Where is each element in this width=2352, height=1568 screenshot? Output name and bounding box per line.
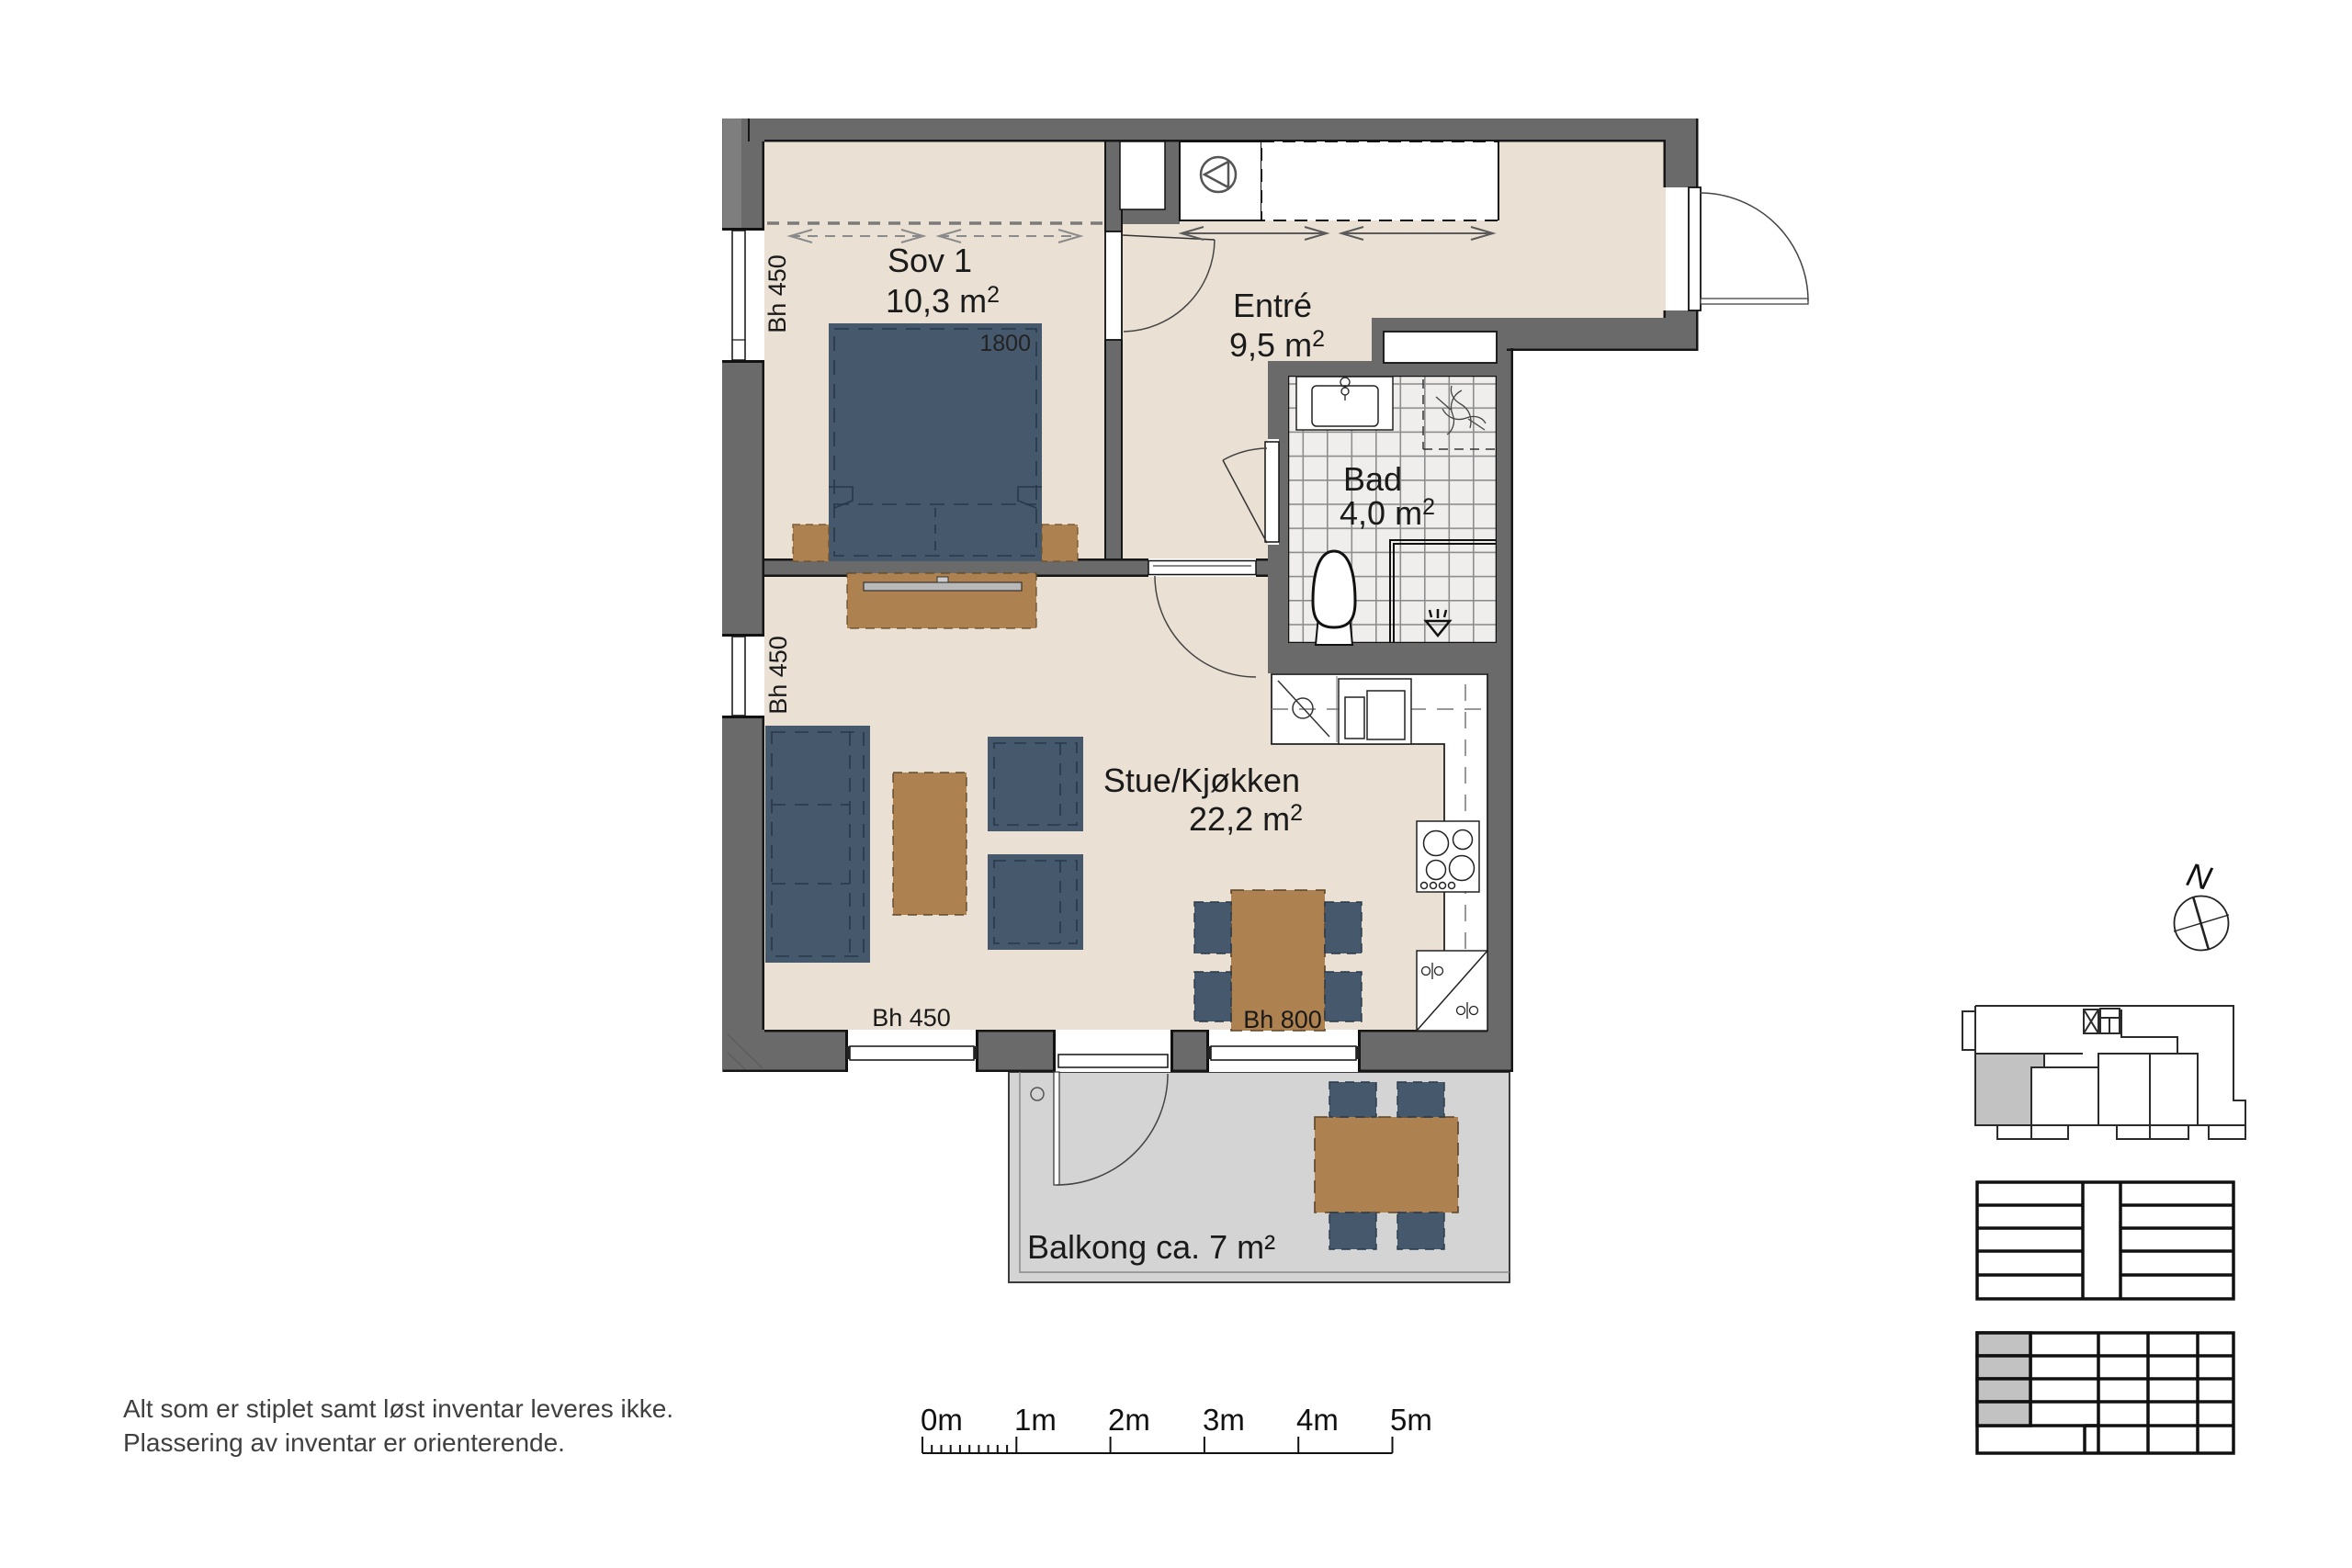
svg-text:Bh 450: Bh 450 [872,1004,951,1032]
svg-text:2m: 2m [1108,1403,1150,1437]
svg-text:3m: 3m [1203,1403,1245,1437]
svg-text:Bad: Bad [1343,460,1402,498]
svg-text:1800: 1800 [979,331,1031,356]
svg-text:Bh 450: Bh 450 [764,636,792,715]
svg-text:22,2 m2: 22,2 m2 [1189,800,1303,838]
svg-text:Sov 1: Sov 1 [888,242,972,279]
svg-text:Alt som er stiplet samt løst i: Alt som er stiplet samt løst inventar le… [123,1394,673,1423]
svg-text:4m: 4m [1296,1403,1339,1437]
svg-text:Bh 450: Bh 450 [763,254,791,333]
svg-text:Bh 800: Bh 800 [1243,1006,1322,1033]
svg-text:5m: 5m [1390,1403,1432,1437]
svg-text:10,3 m2: 10,3 m2 [886,282,1000,320]
svg-text:4,0 m2: 4,0 m2 [1340,494,1435,532]
svg-text:9,5 m2: 9,5 m2 [1229,326,1325,364]
svg-text:Plassering av inventar er orie: Plassering av inventar er orienterende. [123,1428,565,1457]
svg-text:0m: 0m [921,1403,963,1437]
svg-text:Entré: Entré [1233,287,1312,324]
svg-text:Stue/Kjøkken: Stue/Kjøkken [1103,761,1300,799]
svg-text:1m: 1m [1014,1403,1057,1437]
svg-text:Balkong ca. 7 m²: Balkong ca. 7 m² [1027,1228,1275,1266]
